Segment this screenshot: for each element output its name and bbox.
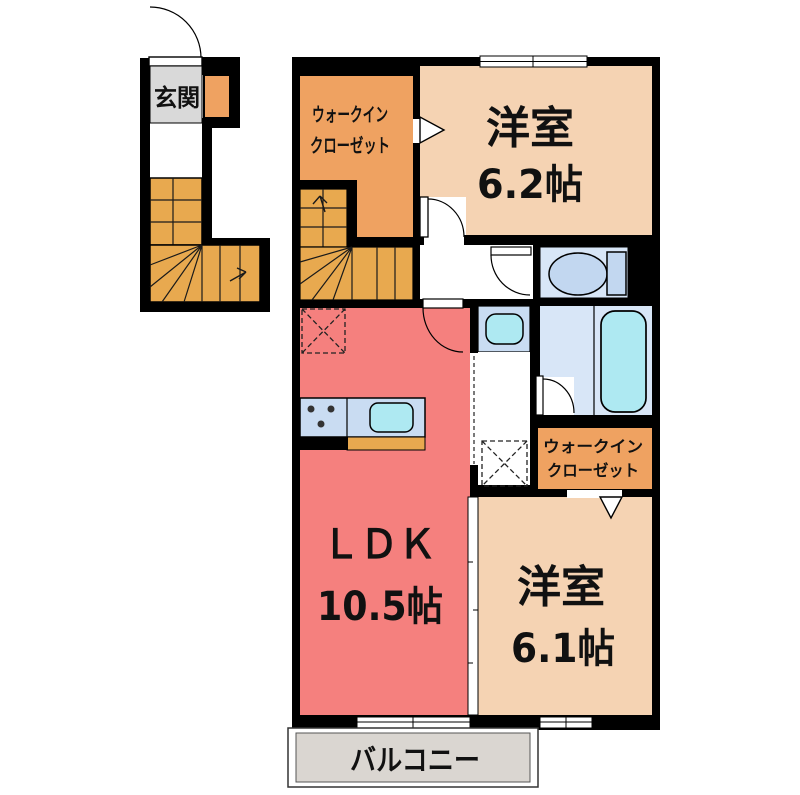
room-ldk [300, 308, 470, 715]
entrance-step [204, 75, 230, 118]
sliding-door [468, 497, 478, 715]
ldk-name: ＬＤＫ [322, 522, 436, 568]
wall [230, 57, 240, 127]
stove-burner-icon [328, 406, 335, 413]
room61-name: 洋室 [517, 562, 605, 613]
wall [260, 238, 270, 312]
floorplan-canvas: 玄関 [0, 0, 800, 795]
door-opening [413, 119, 420, 143]
window-room61 [540, 717, 592, 728]
stairs-winder [300, 247, 413, 300]
kitchen-counter-base [347, 437, 425, 450]
bathtub-icon [601, 311, 646, 412]
toilet-icon [549, 252, 626, 295]
door-opening [424, 235, 464, 245]
wic2-label-line1: ウォークイン [543, 437, 643, 456]
door-leaf [536, 376, 543, 415]
entrance-label: 玄関 [154, 84, 200, 112]
door-leaf [491, 247, 531, 255]
wall [140, 58, 150, 312]
wall [202, 122, 212, 243]
washbasin-sink-icon [486, 314, 523, 344]
window-ldk-balcony [357, 717, 470, 728]
stairs-upper-run [150, 178, 202, 245]
room62-name: 洋室 [486, 103, 574, 154]
wall [292, 437, 348, 450]
main-unit: ウォークイン クローゼット 洋室 6.2帖 ＬＤＫ 10.5帖 ウォークイン ク… [292, 56, 660, 730]
kitchen-sink-icon [370, 403, 413, 432]
wall [140, 302, 270, 312]
washroom-corridor [478, 352, 530, 485]
kitchen-counter [292, 398, 425, 450]
room62-size: 6.2帖 [477, 162, 583, 208]
wic2-label-line2: クローゼット [547, 461, 639, 480]
balcony: バルコニー [288, 728, 538, 787]
stove-burner-icon [308, 406, 315, 413]
wic1-label-line1: ウォークイン [312, 104, 388, 126]
stove-burner-icon [318, 421, 325, 428]
balcony-label: バルコニー [350, 743, 480, 777]
floorplan-svg: 玄関 [0, 0, 800, 795]
window-top [480, 56, 587, 67]
ldk-size: 10.5帖 [317, 584, 443, 630]
wic1-label-line2: クローゼット [310, 134, 390, 157]
entrance-door-leaf [149, 57, 202, 66]
door-leaf [423, 299, 463, 308]
room61-size: 6.1帖 [511, 626, 615, 672]
door-leaf [420, 197, 428, 237]
